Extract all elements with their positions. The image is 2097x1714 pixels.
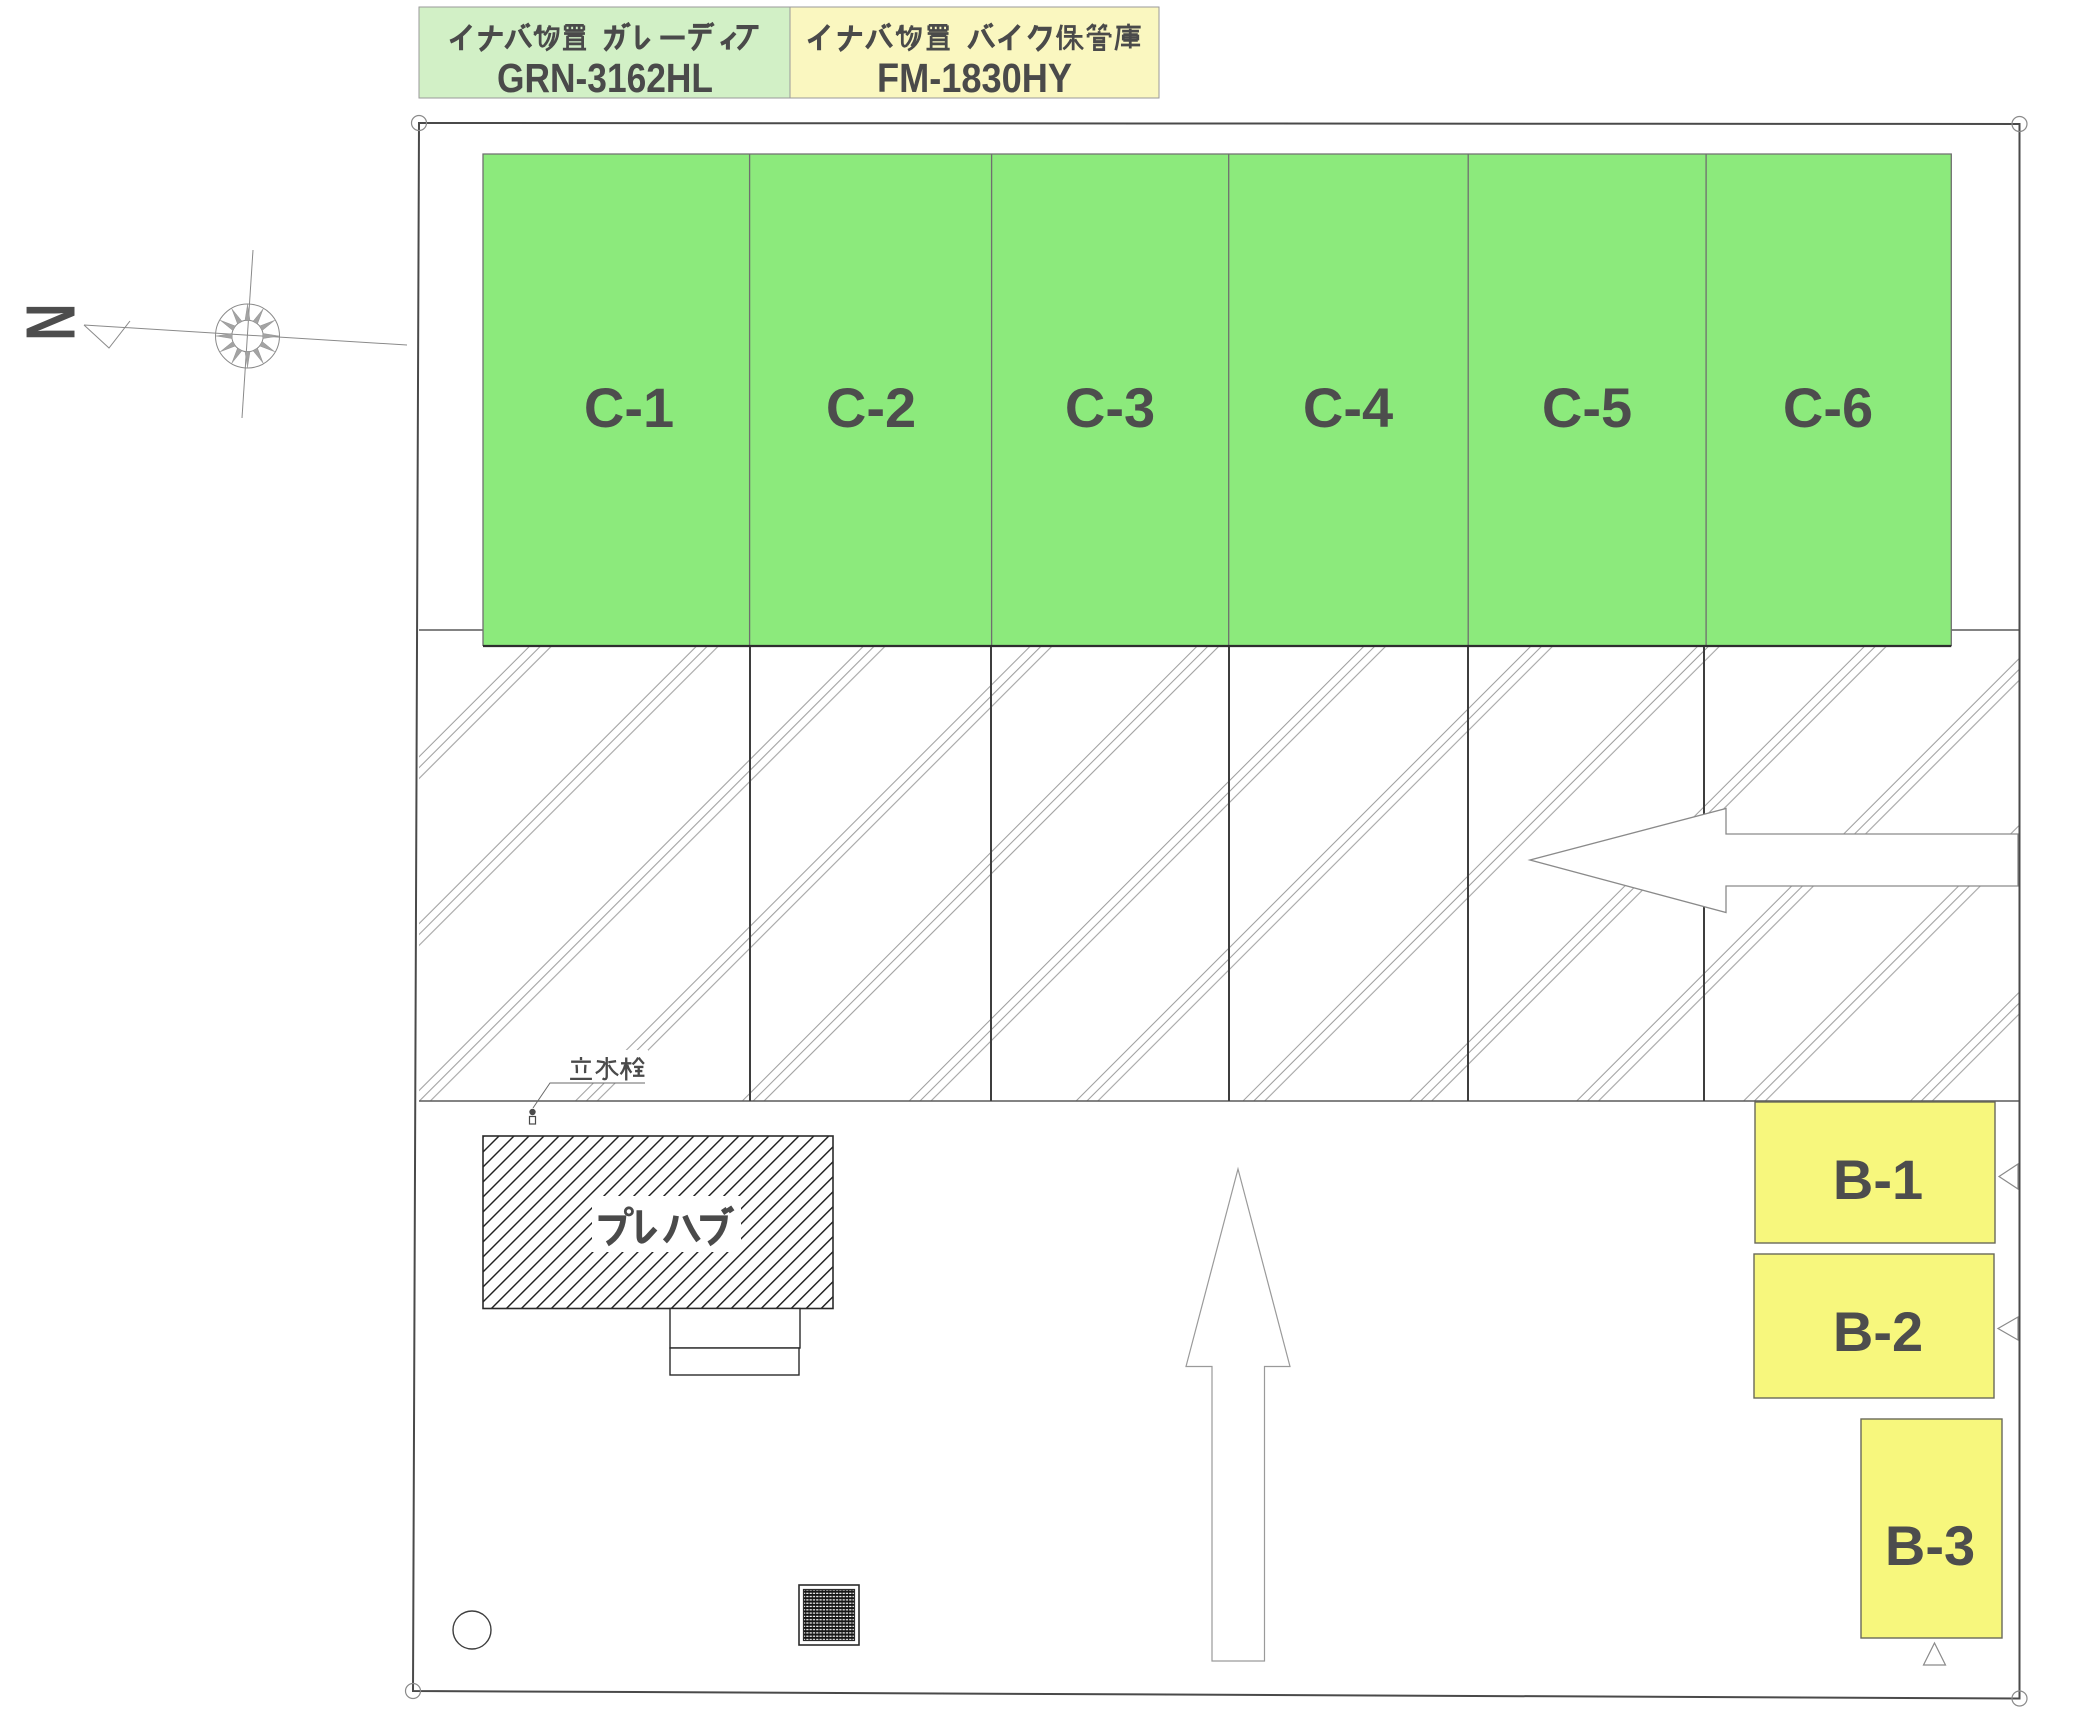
- svg-text:C-6: C-6: [1783, 376, 1873, 439]
- svg-text:FM-1830HY: FM-1830HY: [877, 55, 1072, 101]
- svg-text:C-4: C-4: [1303, 376, 1393, 439]
- svg-text:C-5: C-5: [1542, 376, 1632, 439]
- svg-text:C-1: C-1: [584, 376, 674, 439]
- svg-text:C-2: C-2: [826, 376, 916, 439]
- svg-text:GRN-3162HL: GRN-3162HL: [497, 55, 713, 101]
- svg-text:C-3: C-3: [1065, 376, 1155, 439]
- svg-text:B-1: B-1: [1833, 1148, 1923, 1211]
- svg-text:N: N: [12, 303, 90, 340]
- svg-text:B-2: B-2: [1833, 1300, 1923, 1363]
- svg-text:B-3: B-3: [1885, 1514, 1975, 1577]
